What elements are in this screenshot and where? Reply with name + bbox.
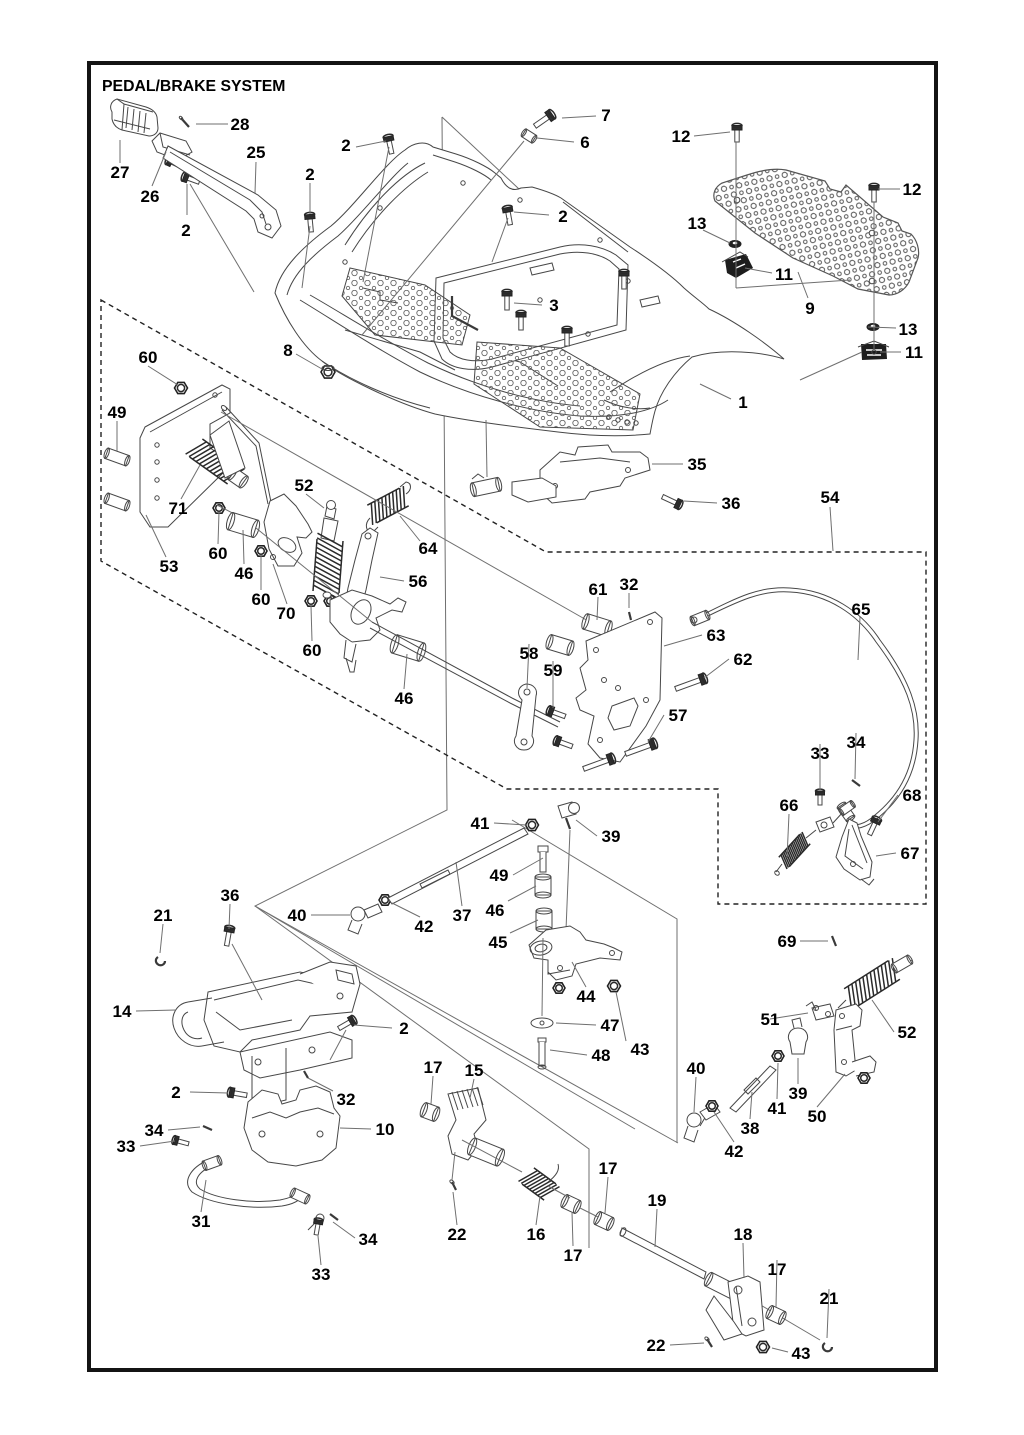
svg-text:2: 2 [181,221,190,240]
svg-text:22: 22 [448,1225,467,1244]
svg-text:69: 69 [778,932,797,951]
svg-text:37: 37 [453,906,472,925]
svg-text:62: 62 [734,650,753,669]
svg-text:40: 40 [288,906,307,925]
svg-text:48: 48 [592,1046,611,1065]
svg-text:44: 44 [577,987,596,1006]
svg-text:39: 39 [602,827,621,846]
svg-text:34: 34 [359,1230,378,1249]
svg-text:2: 2 [399,1019,408,1038]
svg-text:36: 36 [221,886,240,905]
svg-text:39: 39 [789,1084,808,1103]
svg-text:64: 64 [419,539,438,558]
svg-text:11: 11 [775,265,793,284]
svg-text:13: 13 [899,320,918,339]
svg-text:60: 60 [303,641,322,660]
svg-text:46: 46 [235,564,254,583]
svg-text:17: 17 [768,1260,787,1279]
svg-text:28: 28 [231,115,250,134]
svg-text:71: 71 [169,499,188,518]
svg-text:47: 47 [601,1016,620,1035]
svg-text:33: 33 [117,1137,136,1156]
svg-text:53: 53 [160,557,179,576]
svg-text:36: 36 [722,494,741,513]
svg-text:14: 14 [113,1002,132,1021]
svg-text:17: 17 [424,1058,443,1077]
svg-text:16: 16 [527,1225,546,1244]
svg-text:21: 21 [154,906,173,925]
svg-text:60: 60 [252,590,271,609]
svg-text:46: 46 [395,689,414,708]
svg-text:42: 42 [415,917,434,936]
svg-text:45: 45 [489,933,508,952]
svg-text:52: 52 [898,1023,917,1042]
svg-text:43: 43 [792,1344,811,1363]
svg-text:2: 2 [558,207,567,226]
svg-text:8: 8 [283,341,292,360]
svg-text:65: 65 [852,600,871,619]
svg-text:1: 1 [738,393,747,412]
svg-text:34: 34 [145,1121,164,1140]
svg-text:11: 11 [905,343,923,362]
svg-text:9: 9 [805,299,814,318]
svg-text:17: 17 [564,1246,583,1265]
svg-text:58: 58 [520,644,539,663]
svg-text:43: 43 [631,1040,650,1059]
svg-text:34: 34 [847,733,866,752]
svg-text:2: 2 [171,1083,180,1102]
svg-text:54: 54 [821,488,840,507]
svg-text:19: 19 [648,1191,667,1210]
svg-text:6: 6 [580,133,589,152]
svg-text:15: 15 [465,1061,484,1080]
svg-text:25: 25 [247,143,266,162]
svg-text:42: 42 [725,1142,744,1161]
svg-text:41: 41 [768,1099,787,1118]
svg-text:33: 33 [811,744,830,763]
svg-text:31: 31 [192,1212,211,1231]
svg-text:17: 17 [599,1159,618,1178]
svg-text:32: 32 [620,575,639,594]
svg-text:27: 27 [111,163,130,182]
svg-text:35: 35 [688,455,707,474]
svg-text:2: 2 [341,136,350,155]
svg-text:7: 7 [601,106,610,125]
svg-text:61: 61 [589,580,608,599]
svg-text:33: 33 [312,1265,331,1284]
svg-text:46: 46 [486,901,505,920]
svg-text:60: 60 [139,348,158,367]
svg-text:49: 49 [490,866,509,885]
svg-text:50: 50 [808,1107,827,1126]
svg-text:68: 68 [903,786,922,805]
svg-text:41: 41 [471,814,490,833]
svg-text:18: 18 [734,1225,753,1244]
svg-text:10: 10 [376,1120,395,1139]
svg-text:PEDAL/BRAKE SYSTEM: PEDAL/BRAKE SYSTEM [102,78,285,95]
svg-text:21: 21 [820,1289,839,1308]
svg-text:13: 13 [688,214,707,233]
svg-text:38: 38 [741,1119,760,1138]
svg-text:57: 57 [669,706,688,725]
svg-text:3: 3 [549,296,558,315]
svg-text:22: 22 [647,1336,666,1355]
svg-text:12: 12 [672,127,691,146]
svg-text:26: 26 [141,187,160,206]
svg-text:67: 67 [901,844,920,863]
svg-text:66: 66 [780,796,799,815]
svg-text:52: 52 [295,476,314,495]
svg-text:40: 40 [687,1059,706,1078]
svg-text:60: 60 [209,544,228,563]
svg-text:70: 70 [277,604,296,623]
svg-text:49: 49 [108,403,127,422]
svg-text:32: 32 [337,1090,356,1109]
svg-text:56: 56 [409,572,428,591]
svg-text:63: 63 [707,626,726,645]
svg-text:59: 59 [544,661,563,680]
svg-text:2: 2 [305,165,314,184]
svg-text:51: 51 [761,1010,780,1029]
svg-text:12: 12 [903,180,922,199]
